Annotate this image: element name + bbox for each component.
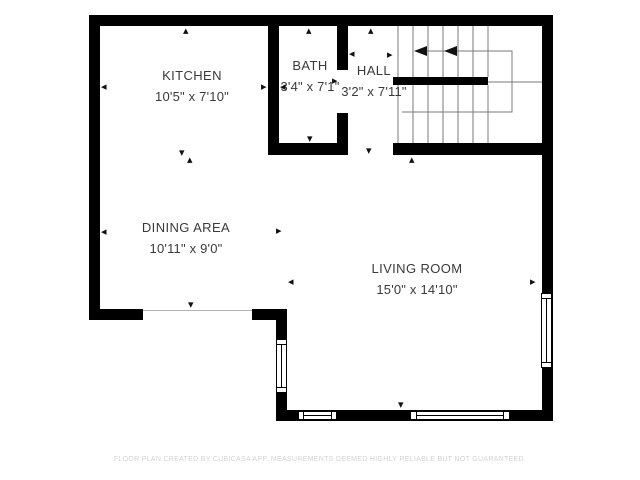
window-frame-line [546,298,547,363]
window-frame-line [303,415,332,416]
stair-direction-arrow-icon [444,46,457,56]
staircase [390,15,553,155]
extent-marker-dining-down-icon: ▾ [188,301,194,308]
footer-disclaimer: FLOOR PLAN CREATED BY CUBICASA APP. MEAS… [0,456,640,463]
bath-dimensions: 3'4" x 7'1" [280,79,339,94]
wall-left-exterior [89,15,100,320]
extent-marker-kitchen-right-icon: ▸ [261,83,267,90]
extent-marker-dining-left-icon: ◂ [101,228,107,235]
kitchen-name: KITCHEN [155,68,229,83]
room-label-living: LIVING ROOM 15'0" x 14'10" [371,261,462,297]
room-label-bath: BATH 3'4" x 7'1" [280,58,339,94]
extent-marker-hall-right-icon: ▸ [387,51,393,58]
extent-marker-hall-up-icon: ▴ [368,27,374,34]
extent-marker-kitchen-down-icon: ▾ [179,149,185,156]
wall-top-exterior [89,15,553,26]
stair-treads-lower [398,85,488,143]
extent-marker-dining-up-icon: ▴ [187,156,193,163]
dining-dimensions: 10'11" x 9'0" [142,241,230,256]
living-name: LIVING ROOM [371,261,462,276]
extent-marker-hall-down-icon: ▾ [366,147,372,154]
wall-stair-mid-rail [393,77,488,85]
extent-marker-hall-left-icon: ◂ [349,50,355,57]
dining-name: DINING AREA [142,220,230,235]
wall-bath-left [268,15,279,155]
room-label-hall: HALL 3'2" x 7'11" [341,63,407,99]
extent-marker-living-right-icon: ▸ [530,278,536,285]
extent-marker-bath-left-icon: ◂ [280,83,286,90]
wall-stairs-bottom [393,143,553,155]
extent-marker-bath-up-icon: ▴ [306,27,312,34]
extent-marker-living-down-icon: ▾ [398,401,404,408]
window-bottom-small [298,411,337,420]
room-label-dining: DINING AREA 10'11" x 9'0" [142,220,230,256]
floor-plan: KITCHEN 10'5" x 7'10" BATH 3'4" x 7'1" H… [0,0,640,480]
extent-marker-living-up-icon: ▴ [409,156,415,163]
stair-direction-arrow-icon [414,46,427,56]
opening-dining-bottom [143,310,252,311]
window-frame-line [281,344,282,388]
extent-marker-kitchen-left-icon: ◂ [101,83,107,90]
window-bottom-large [410,411,510,420]
hall-dimensions: 3'2" x 7'11" [341,84,407,99]
hall-name: HALL [341,63,407,78]
extent-marker-bath-right-icon: ▸ [332,77,338,84]
window-living-left-wall [276,339,287,393]
extent-marker-dining-right-icon: ▸ [276,227,282,234]
kitchen-dimensions: 10'5" x 7'10" [155,89,229,104]
extent-marker-living-left-icon: ◂ [288,278,294,285]
living-dimensions: 15'0" x 14'10" [371,282,462,297]
window-frame-line [416,415,504,416]
room-label-kitchen: KITCHEN 10'5" x 7'10" [155,68,229,104]
wall-dining-bottom-left [89,309,143,320]
extent-marker-bath-down-icon: ▾ [307,135,313,142]
bath-name: BATH [280,58,339,73]
window-right-wall [541,293,552,368]
extent-marker-kitchen-up-icon: ▴ [183,27,189,34]
